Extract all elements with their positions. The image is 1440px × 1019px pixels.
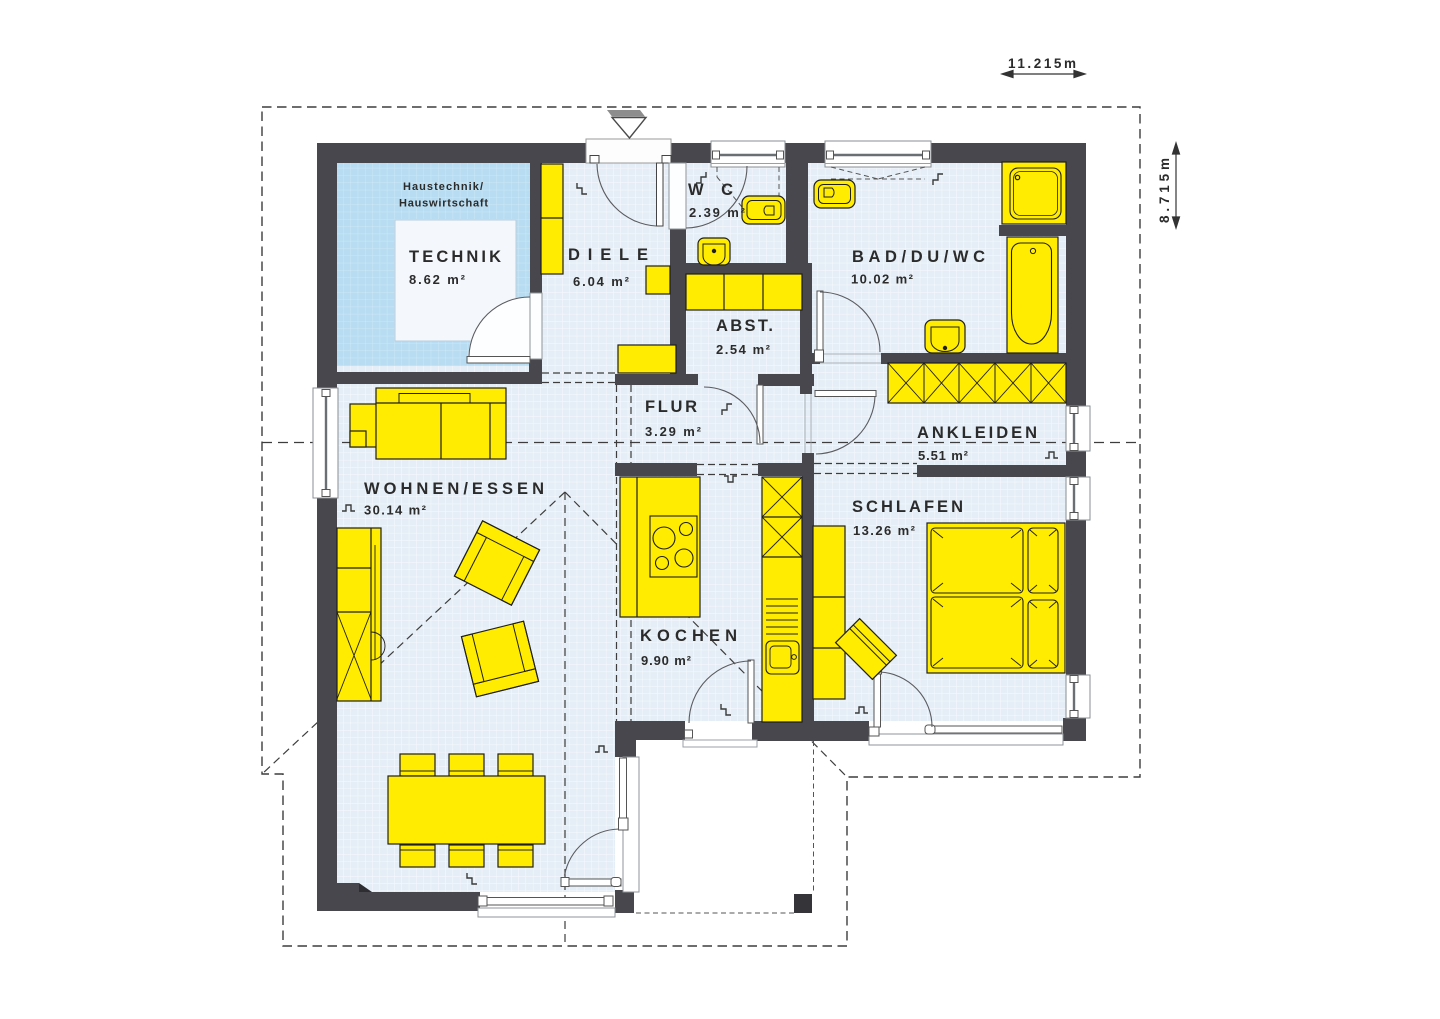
- svg-text:2.39 m²: 2.39 m²: [689, 205, 746, 220]
- svg-text:ANKLEIDEN: ANKLEIDEN: [917, 424, 1037, 442]
- svg-text:ABST.: ABST.: [716, 317, 773, 335]
- svg-text:8.62 m²: 8.62 m²: [409, 272, 466, 287]
- svg-text:13.26 m²: 13.26 m²: [853, 523, 916, 538]
- svg-text:9.90 m²: 9.90 m²: [641, 653, 692, 668]
- svg-text:FLUR: FLUR: [645, 398, 697, 416]
- svg-text:Haustechnik/: Haustechnik/: [403, 181, 483, 193]
- svg-text:6.04 m²: 6.04 m²: [573, 274, 630, 289]
- svg-text:10.02 m²: 10.02 m²: [851, 272, 914, 287]
- svg-text:2.54 m²: 2.54 m²: [716, 342, 771, 357]
- svg-text:WOHNEN/ESSEN: WOHNEN/ESSEN: [364, 480, 544, 498]
- svg-text:3.29 m²: 3.29 m²: [645, 424, 702, 439]
- svg-text:BAD/DU/WC: BAD/DU/WC: [852, 248, 985, 266]
- svg-text:5.51 m²: 5.51 m²: [918, 448, 969, 463]
- svg-text:30.14 m²: 30.14 m²: [364, 503, 427, 518]
- svg-text:Hauswirtschaft: Hauswirtschaft: [399, 198, 488, 210]
